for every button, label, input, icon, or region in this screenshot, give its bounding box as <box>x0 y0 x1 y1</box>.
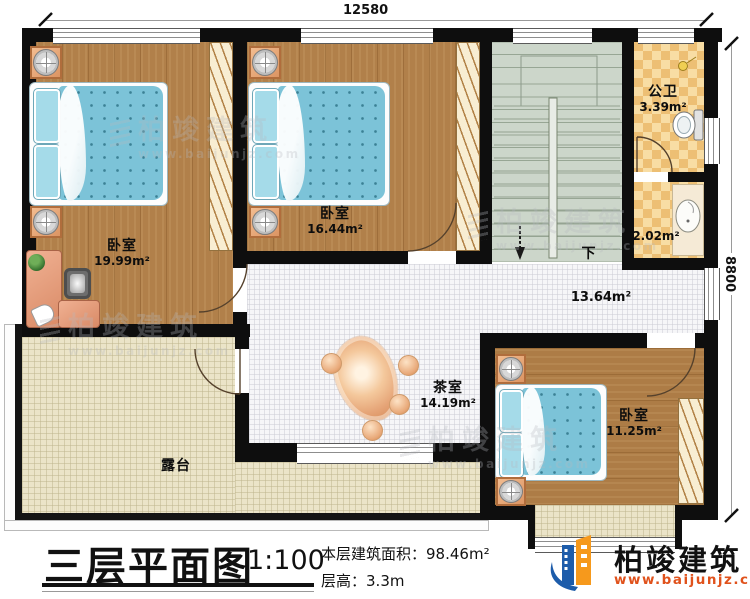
wall-tearoom-south-left <box>235 443 297 462</box>
wall-tearoom-west-top <box>235 337 249 349</box>
window-stairs-north <box>513 28 592 44</box>
nightstand <box>496 477 526 506</box>
pillow <box>500 390 523 432</box>
plant-icon <box>28 254 45 271</box>
pillow <box>500 433 523 477</box>
wall-vestibule-south <box>622 258 704 270</box>
lamp-icon <box>252 49 278 76</box>
bed-bedroom2 <box>248 82 390 206</box>
bedroom2-closet <box>456 42 480 251</box>
top-dimension-line <box>45 20 707 21</box>
wall-bedroom2-south-right <box>456 251 492 264</box>
label-bedroom1: 卧室 19.99m² <box>94 239 150 268</box>
terrace-floor-left <box>22 337 235 513</box>
floor-area-info: 本层建筑面积：98.46m² <box>321 543 490 564</box>
window-bathroom-east <box>704 118 720 164</box>
wall-bedroom2-stairs <box>480 42 492 264</box>
terrace-wall-left <box>15 324 22 520</box>
wall-bedroom1-east <box>233 42 247 268</box>
label-bedroom2: 卧室 16.44m² <box>307 207 363 236</box>
stairwell <box>492 42 622 262</box>
pillow <box>253 145 279 199</box>
label-bathroom: 公卫 3.39m² <box>639 85 686 114</box>
nightstand <box>30 206 62 238</box>
window-tearoom-south <box>297 443 433 464</box>
window-bedroom2-north <box>301 28 433 44</box>
wall-bedroom3-south-left <box>480 505 535 520</box>
bed-bedroom1 <box>29 82 168 206</box>
wall-stairs-bathroom <box>622 42 634 258</box>
wall-bathroom-south <box>668 172 704 182</box>
pillow <box>253 89 279 143</box>
pillow <box>34 145 60 199</box>
nightstand <box>249 46 281 79</box>
desk-return <box>58 300 100 328</box>
terrace-parapet-bottom <box>4 520 489 531</box>
lamp-icon <box>33 209 59 235</box>
lamp-icon <box>33 49 59 76</box>
wall-bedroom3-north-right <box>695 333 704 348</box>
window-hall-east <box>704 268 720 320</box>
nightstand <box>496 354 526 384</box>
bedroom3-wardrobe <box>678 398 704 504</box>
pillow <box>34 89 60 143</box>
bed-bedroom3 <box>495 384 607 481</box>
label-hall: 13.64m² <box>571 291 631 306</box>
balcony-wall-left <box>528 505 535 549</box>
lamp-icon <box>252 209 278 235</box>
stool <box>389 394 410 415</box>
desk-chair <box>64 268 91 299</box>
drawing-scale: 1:100 <box>247 545 325 576</box>
title-underline-thin <box>42 591 314 592</box>
nightstand <box>30 46 62 79</box>
wall-bedroom1-east-stub <box>233 312 247 324</box>
label-bedroom3: 卧室 11.25m² <box>606 409 662 438</box>
title-underline <box>42 583 314 587</box>
wall-bedroom2-south-left <box>233 251 408 264</box>
terrace-wall-bottom <box>15 513 480 520</box>
bedroom1-closet <box>209 42 233 251</box>
label-terrace: 露台 <box>161 459 191 475</box>
window-bathroom-north <box>638 28 694 44</box>
company-logo-icon <box>545 533 609 595</box>
top-dimension-label: 12580 <box>340 3 391 18</box>
terrace-floor-bottom <box>235 462 480 513</box>
stool <box>362 420 383 441</box>
lamp-icon <box>499 357 523 381</box>
label-stairs-down: 下 <box>582 247 597 263</box>
label-tearoom: 茶室 14.19m² <box>420 381 476 410</box>
lamp-icon <box>499 480 523 503</box>
stool <box>321 353 342 374</box>
wall-bedroom3-west <box>480 333 495 520</box>
floor-plan-canvas: 12580 8800 <box>0 0 750 599</box>
nightstand <box>249 206 281 238</box>
label-vestibule: 2.02m² <box>632 230 679 243</box>
washbasin-counter <box>672 184 704 256</box>
right-dimension-label: 8800 <box>722 253 737 295</box>
stool <box>398 355 419 376</box>
window-bedroom1-north <box>53 28 200 44</box>
company-website: www.baijunjz.com <box>614 572 750 588</box>
wall-tearoom-west-bottom <box>235 393 249 445</box>
floor-height-info: 层高：3.3m <box>321 570 404 591</box>
wall-bedroom3-north-left <box>480 333 647 348</box>
